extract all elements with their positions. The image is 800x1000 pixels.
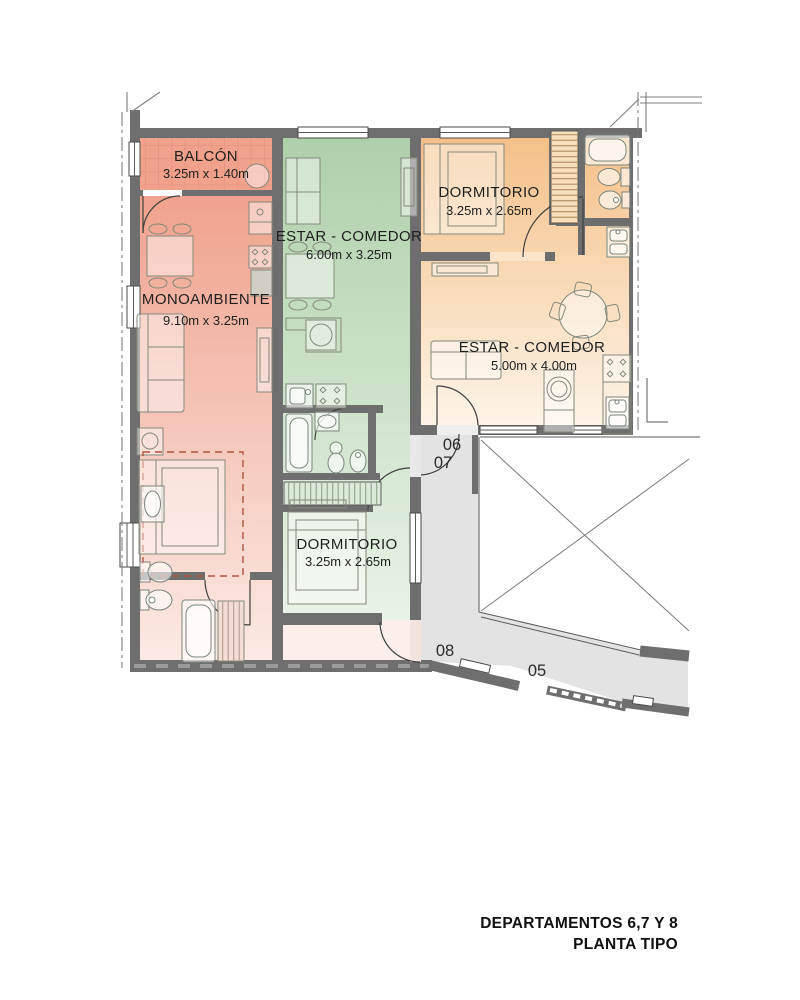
dormitorio-green-label: DORMITORIO (296, 536, 397, 553)
bathroom-sink-icon (315, 412, 339, 431)
window-green-dorm (410, 513, 421, 583)
stove-icon (316, 384, 346, 408)
kitchen-fridge-icon (249, 202, 272, 234)
closet-hatch-strip (284, 482, 381, 505)
dormitorio-green-dims: 3.25m x 2.65m (305, 554, 391, 569)
pink-entry-opening (410, 620, 421, 662)
plan-title-line1: DEPARTAMENTOS 6,7 Y 8 (480, 915, 678, 932)
stair-cross-line (481, 459, 689, 611)
orange-dorm-opening (490, 252, 545, 261)
sofa-icon (137, 314, 184, 412)
floor-plan-page: BALCÓN 3.25m x 1.40m MONOAMBIENTE 9.10m … (0, 0, 800, 1000)
window-orange-bottom-2 (572, 426, 602, 434)
stove-icon (249, 246, 272, 268)
bathtub-icon (286, 414, 312, 472)
laundry-sink-icon (607, 227, 630, 257)
estar-comedor-orange-dims: 5.00m x 4.00m (491, 358, 577, 373)
window-left-large (120, 523, 140, 567)
balcon-dims: 3.25m x 1.40m (163, 166, 249, 181)
window-orange-bottom-1 (480, 426, 537, 434)
tv-cabinet-icon (257, 328, 272, 392)
washing-machine-icon (544, 370, 574, 432)
window-balcony-left (129, 142, 140, 176)
shower-icon (218, 601, 244, 661)
bidet-icon (350, 450, 366, 472)
dormitorio-orange-label: DORMITORIO (438, 184, 539, 201)
bathtub-icon (182, 600, 215, 662)
plan-title-line2: PLANTA TIPO (573, 936, 678, 953)
unit-number-07: 07 (434, 454, 452, 472)
balcony-door-opening (143, 190, 182, 196)
green-entry-opening (410, 435, 421, 477)
context-corner-line (647, 378, 668, 422)
stove-icon (603, 355, 631, 382)
toilet-icon (598, 168, 630, 186)
bathtub-icon (585, 135, 630, 165)
floor-plan-svg: BALCÓN 3.25m x 1.40m MONOAMBIENTE 9.10m … (0, 0, 800, 1000)
estar-comedor-orange-label: ESTAR - COMEDOR (459, 339, 606, 356)
balcon-label: BALCÓN (174, 148, 238, 165)
washing-machine-icon (137, 428, 163, 455)
window-top-orange (440, 127, 510, 138)
orange-entry-opening (437, 425, 478, 435)
kitchen-sink-icon (286, 384, 313, 408)
wall-break-topleft (131, 92, 160, 112)
unit-number-08: 08 (436, 642, 454, 660)
unit-number-06: 06 (443, 436, 461, 454)
toilet-icon (140, 562, 172, 582)
pink-entry-hall-area (283, 620, 410, 660)
toilet-icon (328, 442, 344, 473)
monoambiente-dims: 9.10m x 3.25m (163, 313, 249, 328)
sofa-icon (286, 158, 320, 224)
wall-break-topright (610, 99, 639, 127)
closet-hatch (551, 131, 578, 223)
tv-shelf-icon (432, 263, 498, 276)
title-block: DEPARTAMENTOS 6,7 Y 8 PLANTA TIPO (480, 915, 678, 953)
tv-cabinet-icon (401, 158, 417, 216)
bidet-icon (140, 590, 172, 610)
bidet-icon (599, 191, 630, 209)
estar-comedor-green-dims: 6.00m x 3.25m (306, 247, 392, 262)
unit-number-05: 05 (528, 662, 546, 680)
monoambiente-label: MONOAMBIENTE (142, 291, 270, 308)
estar-comedor-green-label: ESTAR - COMEDOR (276, 228, 423, 245)
dormitorio-orange-dims: 3.25m x 2.65m (446, 203, 532, 218)
bathroom-sink-icon (141, 486, 164, 522)
window-top-green (298, 127, 368, 138)
